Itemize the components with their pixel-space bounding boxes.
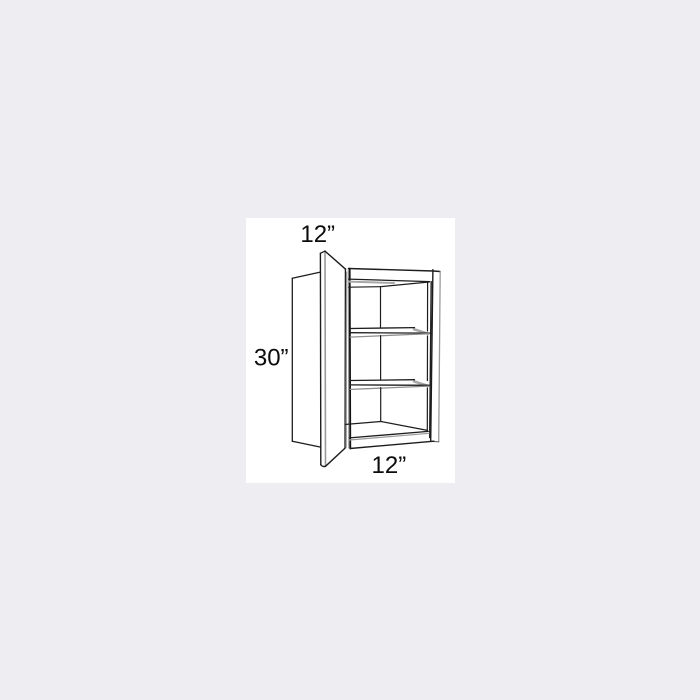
- svg-text:30”: 30”: [254, 344, 289, 371]
- svg-text:12”: 12”: [372, 452, 407, 479]
- svg-text:12”: 12”: [300, 221, 335, 248]
